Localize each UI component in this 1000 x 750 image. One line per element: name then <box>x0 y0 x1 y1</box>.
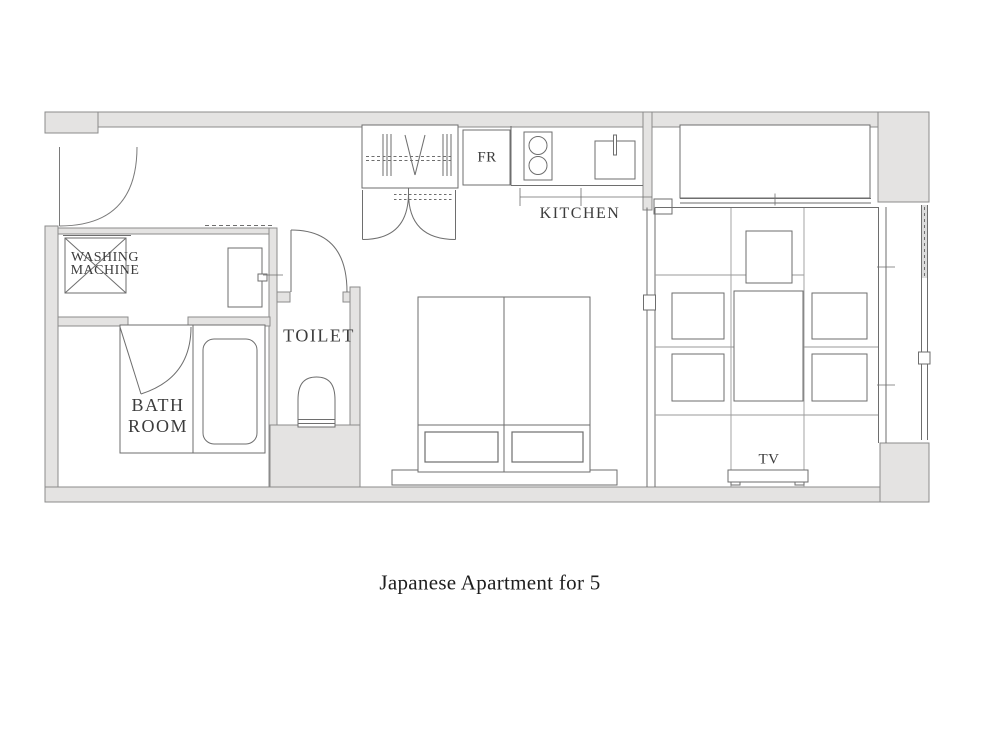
cushion-sw <box>672 354 724 401</box>
tv-board-top <box>728 470 808 482</box>
wall-kitchen-partition <box>643 112 652 210</box>
kitchen <box>463 126 672 214</box>
wall-left <box>45 226 58 502</box>
wall-bottom-band <box>45 487 929 502</box>
wall-ne-block <box>878 112 929 202</box>
wall-toilet-door-left-jamb <box>277 292 290 302</box>
vanity-sink <box>228 248 267 307</box>
window-meeting-stile <box>919 352 931 364</box>
bathroom-label: BATH ROOM <box>128 395 188 437</box>
entrance-door-swing-arc <box>60 147 138 226</box>
wall-washroom-top <box>58 228 276 234</box>
stove <box>524 132 552 180</box>
living-room <box>644 125 879 487</box>
plan-title: Japanese Apartment for 5 <box>379 571 600 596</box>
faucet <box>614 135 617 155</box>
cushion-se <box>812 354 867 401</box>
low-table <box>734 291 803 401</box>
fridge-label: FR <box>477 150 496 167</box>
kitchen-label: KITCHEN <box>540 205 621 223</box>
kitchen-column <box>654 199 672 214</box>
cushion-ne <box>812 293 867 339</box>
wall-block-below-toilet <box>270 425 360 487</box>
washing-machine-label: WASHING MACHINE <box>71 251 140 277</box>
toilet-label: TOILET <box>283 326 355 347</box>
closet-double-doors <box>363 188 456 240</box>
floor-plan-page: WASHING MACHINE BATH ROOM TOILET KITCHEN… <box>0 0 1000 750</box>
wardrobe-closet <box>362 125 458 240</box>
oshiire-closet <box>680 125 870 198</box>
wall-bathroom-top-west <box>58 317 128 326</box>
floor-plan-drawing <box>0 0 1000 750</box>
toilet-door-swing-arc <box>291 230 347 292</box>
wall-se-block <box>880 443 929 502</box>
tv-label: TV <box>759 452 780 469</box>
kitchen-sink <box>595 135 635 179</box>
floor-chair <box>746 231 792 283</box>
tv-board-foot-right <box>795 482 804 485</box>
entrance-door <box>60 147 138 226</box>
wall-nw-block <box>45 112 98 133</box>
living-west-column <box>644 295 656 310</box>
closet-door-arc-left <box>363 193 409 240</box>
bedroom-beds <box>392 297 617 485</box>
balcony-window <box>877 205 930 443</box>
bathtub <box>203 339 257 444</box>
tv-board-foot-left <box>731 482 740 485</box>
kitchen-dimension-line <box>520 188 652 206</box>
toilet-fixture <box>298 377 335 427</box>
tv-board <box>728 470 808 485</box>
vanity-basin <box>228 248 262 307</box>
cushion-nw <box>672 293 724 339</box>
